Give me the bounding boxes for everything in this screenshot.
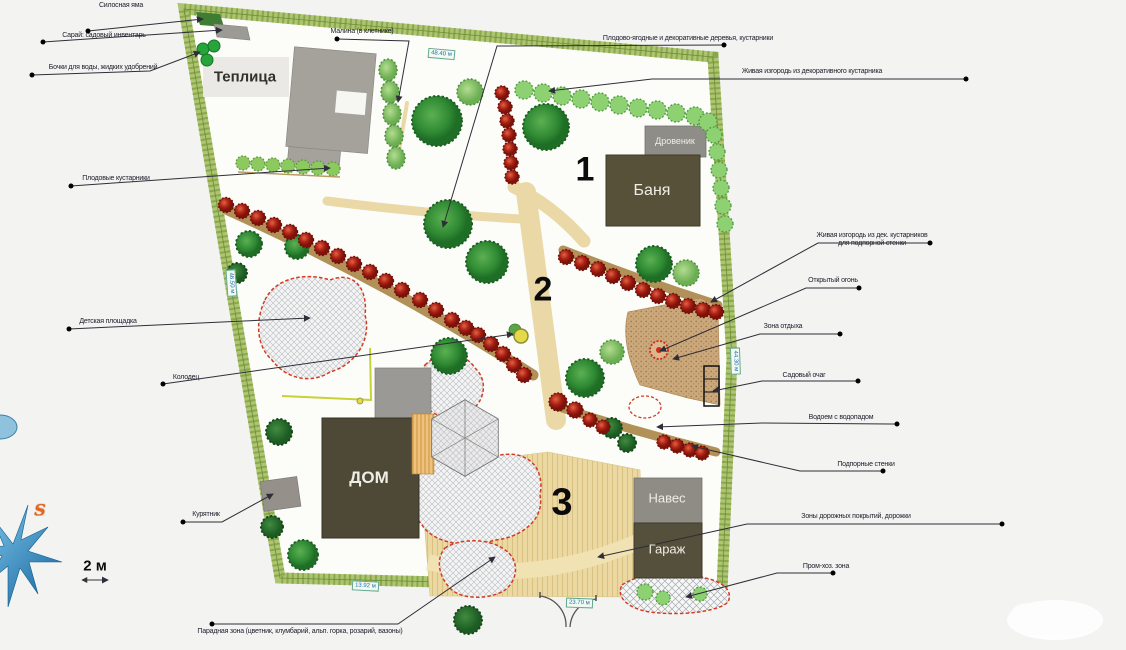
callout-chicken-coop: Курятник [192,511,220,519]
callout-playground: Детская площадка [79,318,136,326]
water-barrel [208,40,220,52]
callout-garden-hearth: Садовый очаг [782,372,825,380]
zone-number-1: 1 [576,151,595,190]
house-label: ДОМ [349,468,389,488]
watermark [1007,600,1103,640]
plan-graphics [0,0,1126,650]
callout-fruit-trees: Плодово-ягодные и декоративные деревья, … [603,35,773,43]
scale-label: 2 м [83,558,107,575]
compass-rose [0,505,62,607]
water-barrel [201,54,213,66]
callout-barrels: Бочки для воды, жидких удобрений [49,64,158,72]
callout-raspberry: Малина (в клетнике) [331,28,394,36]
callout-hedge-decorative: Живая изгородь из декоративного кустарни… [742,68,882,76]
callout-open-fire: Открытый огонь [808,277,858,285]
pond [0,415,17,439]
callout-paving-zones: Зоны дорожных покрытий, дорожки [801,513,910,521]
measure-bottom-left: 13.92 м [352,580,379,591]
callout-silo-pit: Силосная яма [99,2,143,10]
garage-label: Гараж [649,542,686,557]
chicken-coop-footprint [260,477,301,512]
landscape-plan: Силосная яма Сарай: садовый инвентарь Бо… [0,0,1126,650]
callout-front-zone: Парадная зона (цветник, клумбарий, альп.… [197,628,402,636]
annex-footprint [375,368,431,418]
callout-shed: Сарай: садовый инвентарь [62,32,146,40]
well [514,329,528,343]
callout-pond: Водоем с водопадом [809,414,874,422]
measure-right: 44.30 м [730,347,741,374]
zone-number-3: 3 [551,482,572,525]
canopy-label: Навес [648,491,685,506]
water-barrel [197,43,209,55]
callout-fruit-bushes: Плодовые кустарники [82,175,149,183]
greenhouse-label: Теплица [214,69,276,86]
callout-retaining-walls: Подпорные стенки [837,461,894,469]
zone-number-2: 2 [534,271,553,310]
measure-left: 46.50 м [225,269,237,296]
woodshed-label: Дровеник [655,136,695,146]
compass-letter: S [34,501,46,520]
measure-gate: 23.70 м [566,598,593,609]
bathhouse-label: Баня [634,182,671,200]
callout-well: Колодец [173,374,199,382]
callout-rest-zone: Зона отдыха [764,323,803,331]
wooden-deck [412,414,434,474]
callout-hedge-retaining: Живая изгородь из дек. кустарников для п… [816,232,927,248]
callout-utility-zone: Пром-хоз. зона [803,563,849,571]
